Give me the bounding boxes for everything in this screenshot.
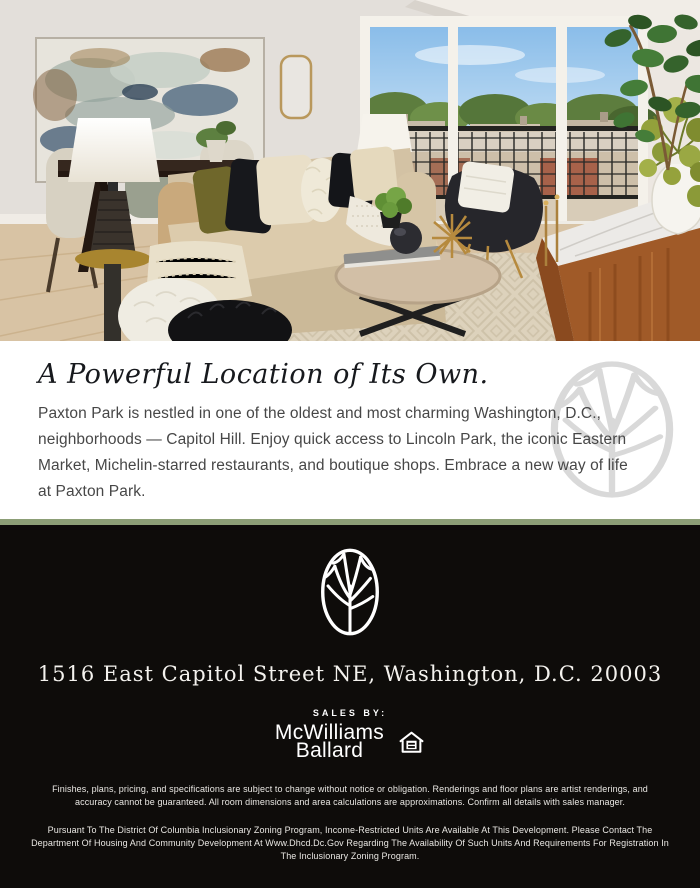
intro-paragraph-line: at Paxton Park. [38, 479, 662, 505]
disclaimer-2-line: Department Of Housing And Community Deve… [0, 837, 700, 850]
intro-paragraph: Paxton Park is nestled in one of the old… [38, 401, 662, 505]
mcwilliams-ballard-wordmark: McWilliams Ballard [275, 724, 384, 760]
disclaimer-2: Pursuant To The District Of Columbia Inc… [0, 824, 700, 863]
headline: A Powerful Location of Its Own. [38, 359, 662, 390]
living-room-photo-illustration [0, 0, 700, 341]
disclaimer-2-line: The Inclusionary Zoning Program. [0, 850, 700, 863]
intro-paragraph-line: Paxton Park is nestled in one of the old… [38, 401, 662, 427]
disclaimer-1-line: accuracy cannot be guaranteed. All room … [0, 796, 700, 809]
hero-wall-mirror [281, 56, 311, 118]
hero-photo [0, 0, 700, 341]
sales-by-label: SALES BY: [0, 708, 700, 718]
brand-line-ballard: Ballard [275, 742, 384, 760]
disclaimer-1: Finishes, plans, pricing, and specificat… [0, 783, 700, 809]
intro-paragraph-line: Market, Michelin-starred restaurants, an… [38, 453, 662, 479]
mcwilliams-ballard-logo: McWilliams Ballard [0, 724, 700, 760]
property-address: 1516 East Capitol Street NE, Washington,… [0, 662, 700, 686]
intro-section: A Powerful Location of Its Own. Paxton P… [0, 341, 700, 519]
footer-section: 1516 East Capitol Street NE, Washington,… [0, 525, 700, 888]
equal-housing-opportunity-icon [398, 730, 425, 754]
tree-logo-icon [312, 542, 388, 642]
disclaimer-2-line: Pursuant To The District Of Columbia Inc… [0, 824, 700, 837]
disclaimer-1-line: Finishes, plans, pricing, and specificat… [0, 783, 700, 796]
flyer-page: A Powerful Location of Its Own. Paxton P… [0, 0, 700, 888]
intro-paragraph-line: neighborhoods — Capitol Hill. Enjoy quic… [38, 427, 662, 453]
